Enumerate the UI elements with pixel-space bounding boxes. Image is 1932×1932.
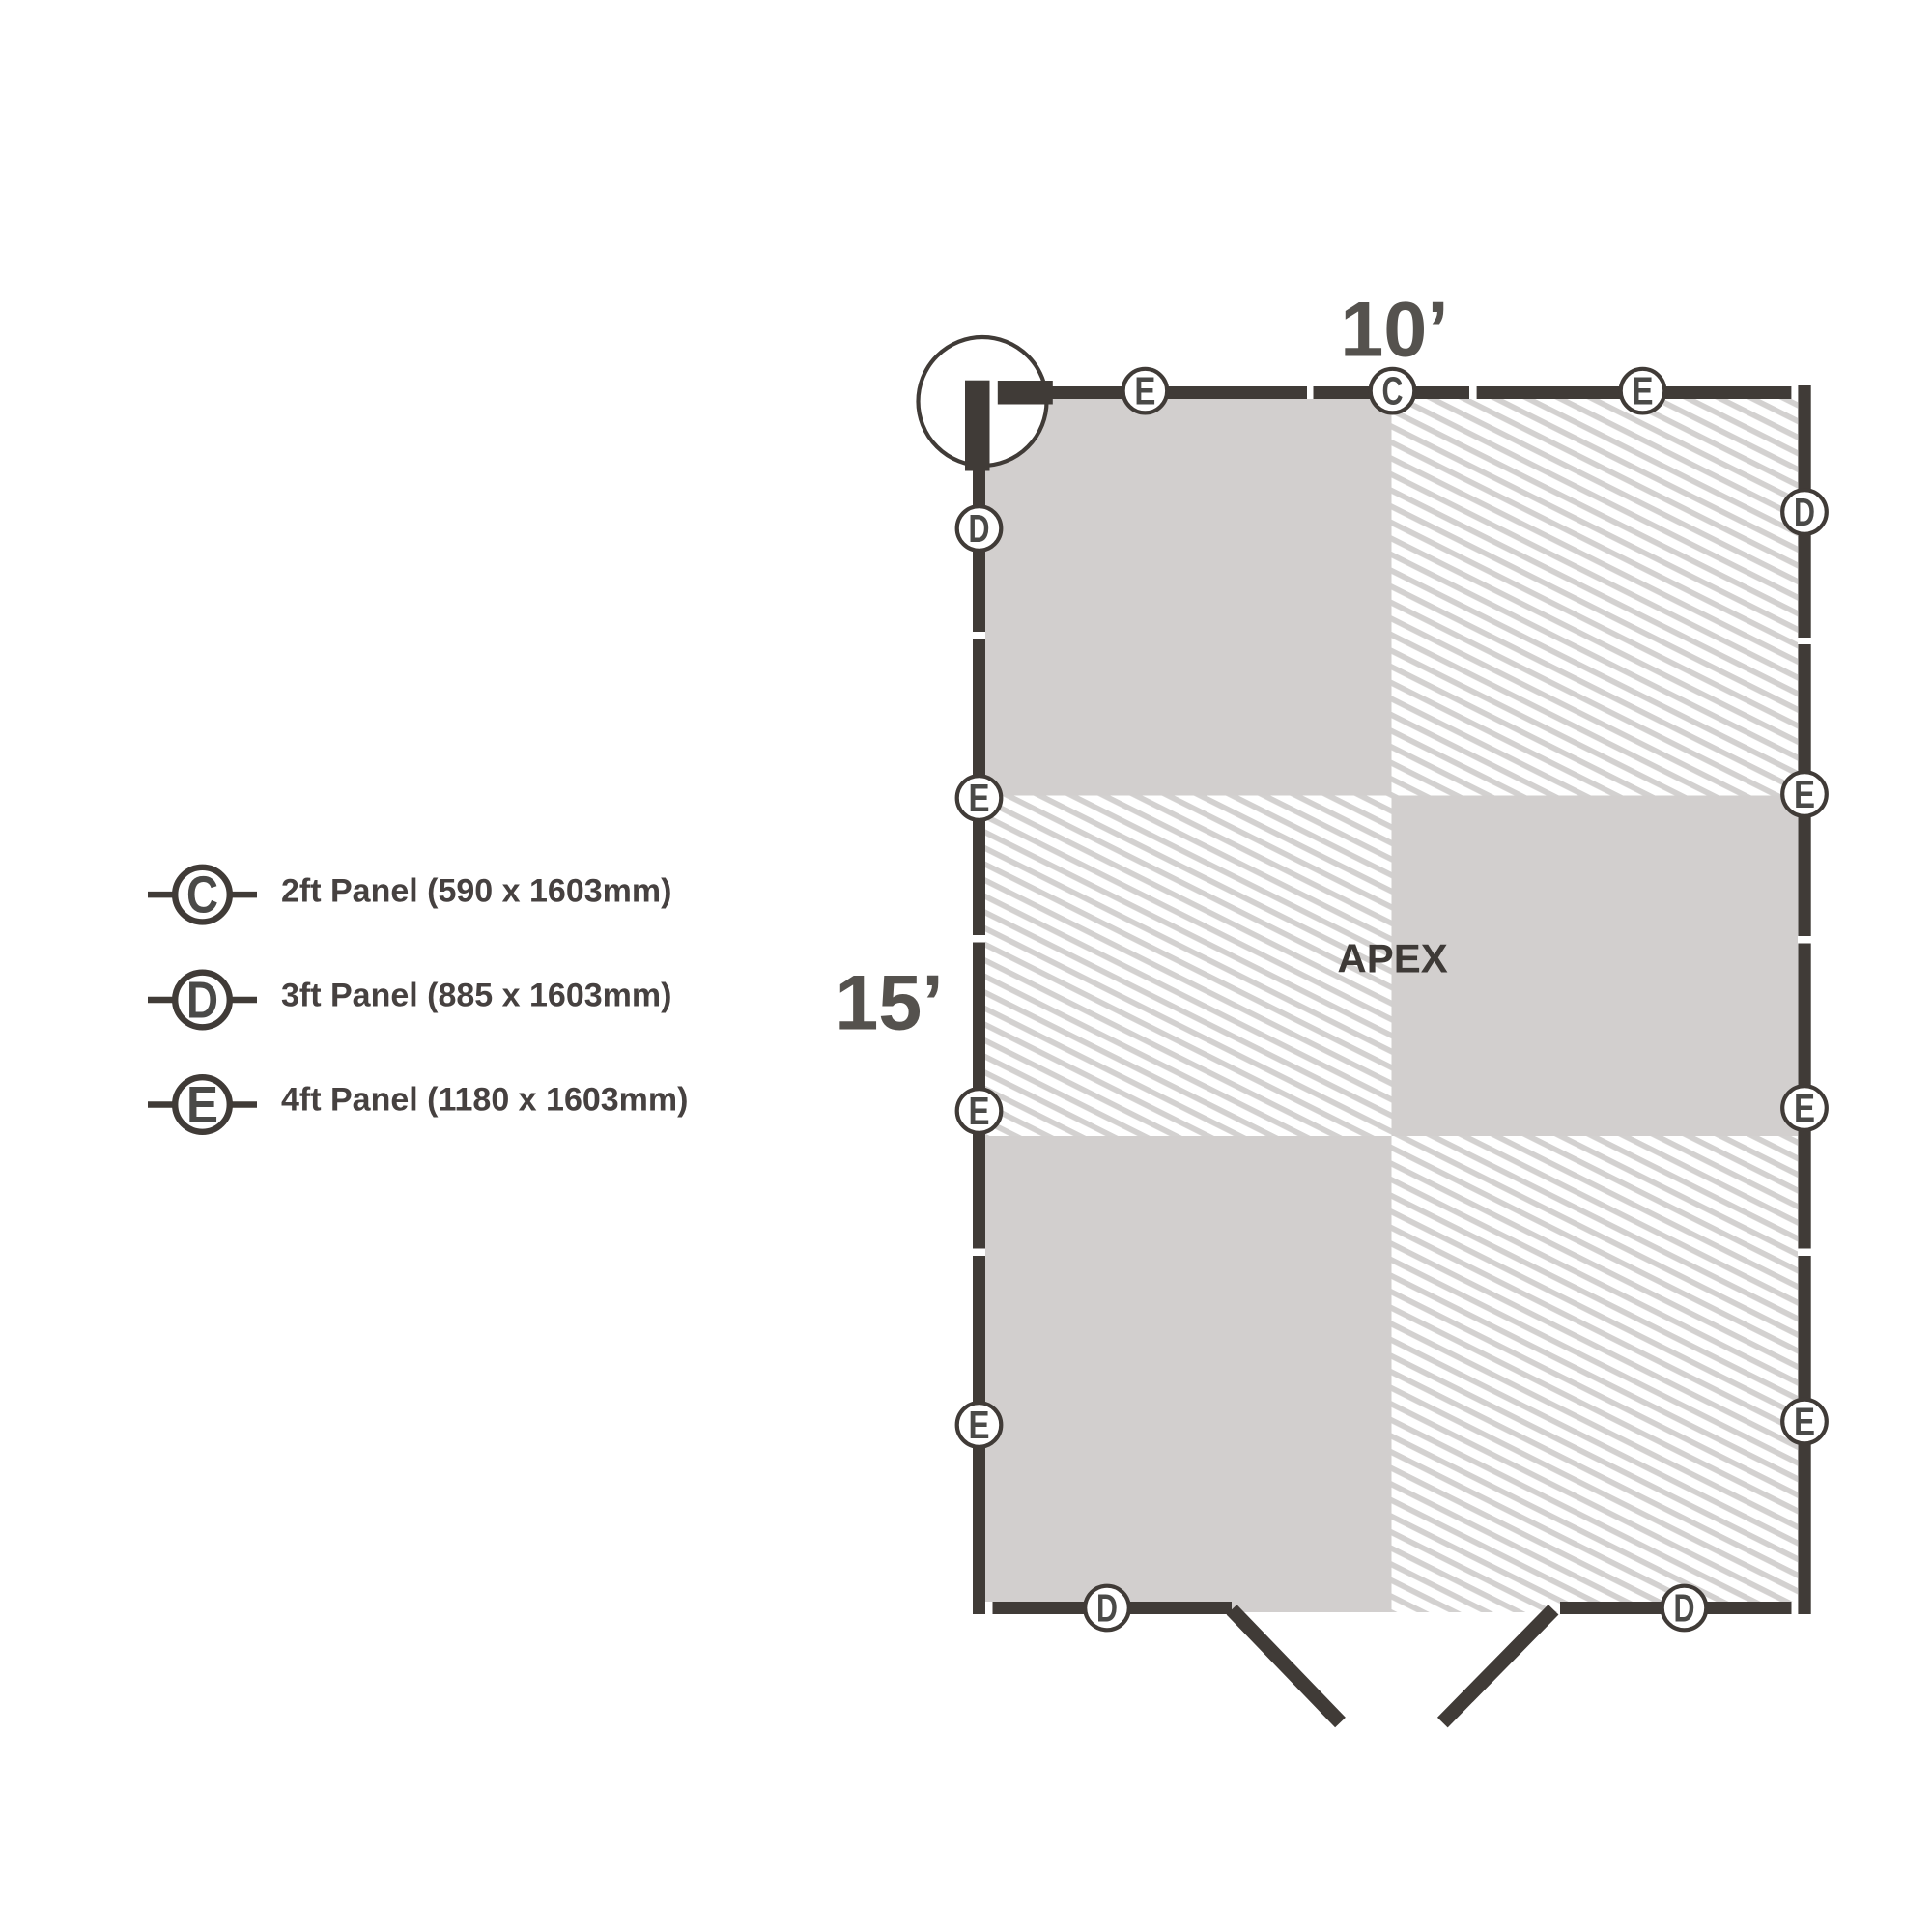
svg-text:D: D <box>1096 1585 1118 1630</box>
svg-text:15’: 15’ <box>835 960 944 1047</box>
svg-text:2ft Panel (590 x 1603mm): 2ft Panel (590 x 1603mm) <box>281 873 671 910</box>
svg-text:E: E <box>1794 1399 1815 1443</box>
svg-text:C: C <box>1382 369 1404 413</box>
svg-text:D: D <box>1674 1585 1695 1630</box>
svg-text:C: C <box>186 867 218 924</box>
svg-text:3ft Panel (885 x 1603mm): 3ft Panel (885 x 1603mm) <box>281 978 671 1014</box>
svg-text:D: D <box>969 506 990 551</box>
svg-text:10’: 10’ <box>1340 287 1449 374</box>
svg-text:APEX: APEX <box>1337 935 1447 980</box>
svg-text:E: E <box>1794 772 1815 816</box>
svg-text:E: E <box>186 1076 218 1134</box>
svg-text:D: D <box>186 972 218 1030</box>
svg-text:E: E <box>1134 369 1155 413</box>
svg-text:D: D <box>1794 490 1815 534</box>
svg-text:4ft Panel (1180 x 1603mm): 4ft Panel (1180 x 1603mm) <box>281 1082 688 1119</box>
svg-text:E: E <box>1633 369 1654 413</box>
svg-text:E: E <box>969 776 990 820</box>
svg-text:E: E <box>969 1089 990 1133</box>
svg-text:E: E <box>1794 1086 1815 1130</box>
svg-text:E: E <box>969 1403 990 1447</box>
